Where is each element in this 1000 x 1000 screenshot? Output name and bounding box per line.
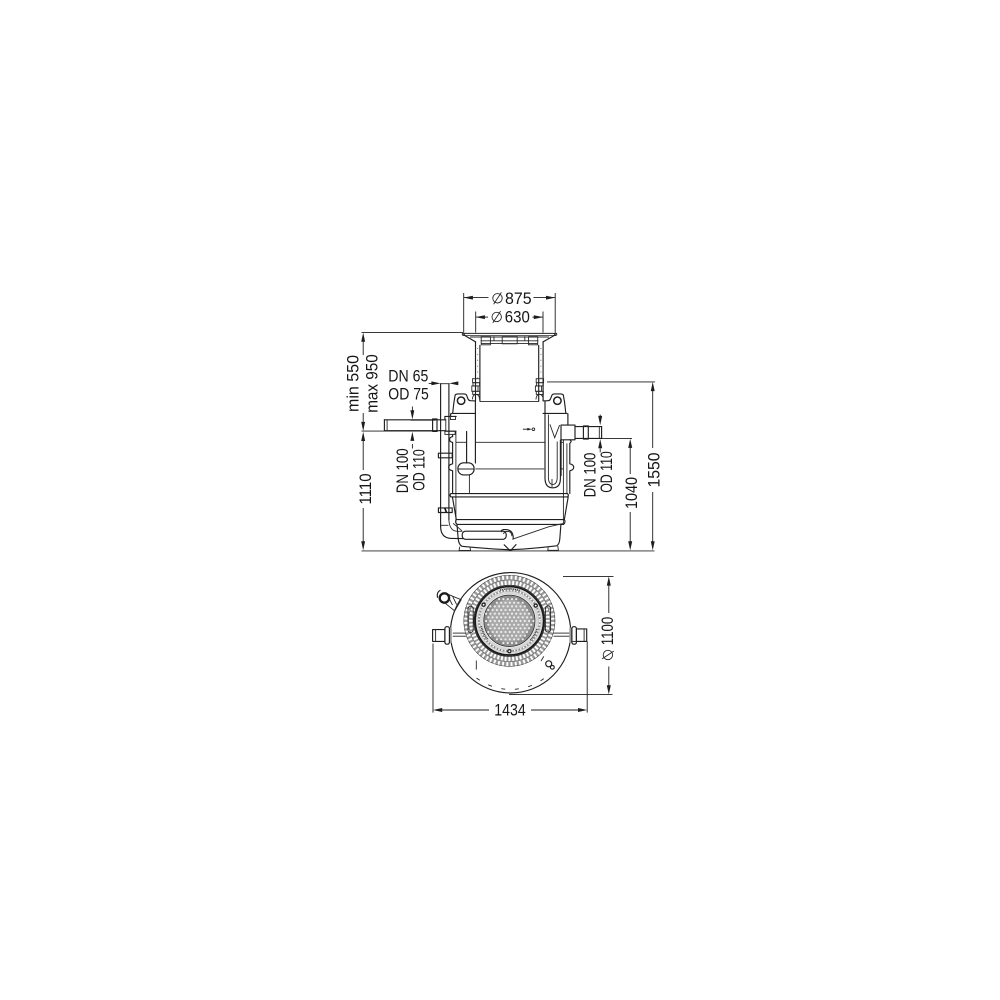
svg-text:1434: 1434 (494, 701, 526, 720)
svg-text:DN 100: DN 100 (394, 448, 412, 493)
svg-text:OD 75: OD 75 (388, 386, 429, 404)
svg-text:1550: 1550 (646, 453, 664, 488)
svg-text:1110: 1110 (357, 474, 375, 505)
svg-text:min 550: min 550 (344, 355, 362, 412)
svg-text:max 950: max 950 (363, 354, 381, 413)
svg-text:630: 630 (505, 308, 530, 326)
svg-text:DN 65: DN 65 (388, 368, 428, 386)
svg-text:1100: 1100 (599, 617, 617, 646)
svg-text:OD 110: OD 110 (410, 449, 428, 491)
svg-text:DN 100: DN 100 (581, 453, 599, 498)
svg-text:1040: 1040 (623, 477, 641, 509)
svg-text:875: 875 (505, 290, 532, 308)
svg-text:OD 110: OD 110 (598, 451, 616, 493)
